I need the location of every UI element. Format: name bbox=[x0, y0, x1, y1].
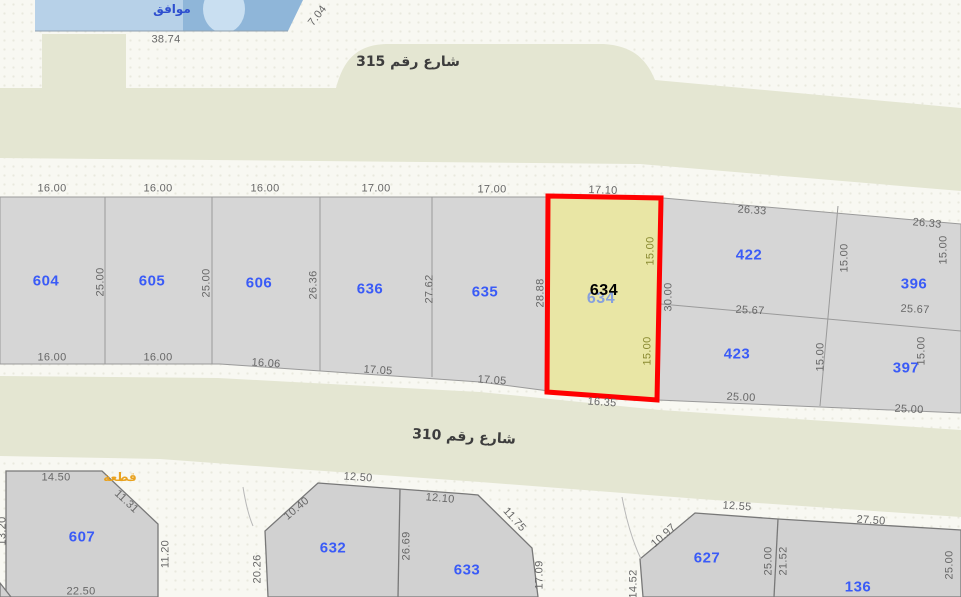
plot-orange-label: قطعة bbox=[103, 471, 137, 483]
dimension-label: 25.00 bbox=[96, 267, 107, 296]
dimension-label: 7.04 bbox=[307, 4, 330, 29]
dimension-label: 12.55 bbox=[722, 501, 752, 514]
dimension-label: 26.33 bbox=[912, 217, 942, 230]
dimension-label: 25.67 bbox=[735, 305, 765, 318]
dimension-label: 14.52 bbox=[629, 569, 640, 597]
parcel-605-label: 605 bbox=[139, 274, 166, 289]
dimension-label: 30.00 bbox=[664, 282, 675, 311]
dimension-label: 25.00 bbox=[764, 546, 775, 575]
dimension-label: 25.00 bbox=[202, 268, 213, 297]
parcel-633-label: 633 bbox=[454, 563, 481, 578]
dimension-label: 12.50 bbox=[343, 472, 373, 485]
dimension-label: 11.31 bbox=[112, 488, 140, 515]
parcel-423-label: 423 bbox=[724, 347, 751, 362]
parcel-636-label: 636 bbox=[357, 282, 384, 297]
dimension-label: 15.00 bbox=[646, 236, 657, 265]
dimension-label: 26.33 bbox=[737, 205, 767, 218]
dimension-label: 17.00 bbox=[361, 184, 390, 195]
dimension-label: 11.20 bbox=[161, 540, 172, 568]
dimension-label: 38.74 bbox=[151, 35, 180, 46]
dimension-label: 25.67 bbox=[900, 304, 930, 317]
dimension-label: 25.00 bbox=[945, 550, 956, 579]
parcel-604-label: 604 bbox=[33, 274, 60, 289]
dimension-label: 16.00 bbox=[143, 184, 172, 195]
dimension-label: 14.50 bbox=[41, 473, 70, 484]
dimension-label: 15.00 bbox=[816, 342, 827, 371]
dimension-label: 15.00 bbox=[643, 336, 654, 365]
dimension-label: 16.00 bbox=[37, 353, 66, 364]
dimension-label: 27.62 bbox=[425, 274, 436, 303]
dimension-label: 17.05 bbox=[477, 375, 507, 388]
dimension-label: 15.00 bbox=[840, 243, 851, 272]
parcel-607-label: 607 bbox=[69, 530, 96, 545]
dimension-label: 25.00 bbox=[894, 404, 924, 417]
dimension-label: 26.69 bbox=[402, 531, 413, 560]
dimension-label: 11.75 bbox=[500, 506, 527, 534]
dimension-label: 17.00 bbox=[477, 185, 506, 196]
dimension-label: 21.52 bbox=[779, 546, 790, 575]
dimension-label: 27.50 bbox=[856, 515, 886, 528]
street-310-label: شارع رقم 310 bbox=[412, 427, 516, 446]
dimension-label: 10.97 bbox=[650, 522, 679, 550]
dimension-label: 17.10 bbox=[588, 185, 617, 197]
dimension-label: 15.00 bbox=[939, 235, 950, 264]
parcel-136-label: 136 bbox=[845, 580, 872, 595]
parcel-632-label: 632 bbox=[320, 541, 347, 556]
street-315-label: شارع رقم 315 bbox=[356, 55, 460, 69]
dimension-label: 13.20 bbox=[0, 516, 9, 545]
dimension-label: 28.88 bbox=[536, 278, 547, 307]
dimension-label: 16.00 bbox=[143, 353, 172, 364]
dimension-label: 10.40 bbox=[282, 495, 311, 522]
dimension-label: 16.00 bbox=[37, 184, 66, 195]
map-label-layer: موافق38.747.04شارع رقم 315شارع رقم 31016… bbox=[0, 0, 961, 597]
dimension-label: 22.50 bbox=[66, 587, 95, 597]
dimension-label: 12.10 bbox=[425, 492, 455, 505]
parcel-606-label: 606 bbox=[246, 276, 273, 291]
dimension-label: 25.00 bbox=[726, 392, 756, 405]
dimension-label: 17.09 bbox=[535, 560, 546, 589]
parking-label: موافق bbox=[153, 3, 191, 15]
dimension-label: 17.05 bbox=[363, 365, 393, 378]
dimension-label: 15.00 bbox=[917, 336, 928, 365]
parcel-422-label: 422 bbox=[736, 248, 763, 263]
cadastral-map-viewport[interactable]: موافق38.747.04شارع رقم 315شارع رقم 31016… bbox=[0, 0, 961, 597]
parcel-635-label: 635 bbox=[472, 285, 499, 300]
parcel-627-label: 627 bbox=[694, 551, 721, 566]
dimension-label: 16.35 bbox=[587, 397, 617, 410]
dimension-label: 16.00 bbox=[250, 184, 279, 195]
parcel-634-highlight-label: 634 bbox=[590, 283, 618, 299]
dimension-label: 26.36 bbox=[309, 270, 320, 299]
parcel-396-label: 396 bbox=[901, 277, 928, 292]
dimension-label: 16.06 bbox=[251, 358, 281, 371]
dimension-label: 20.26 bbox=[253, 554, 264, 583]
